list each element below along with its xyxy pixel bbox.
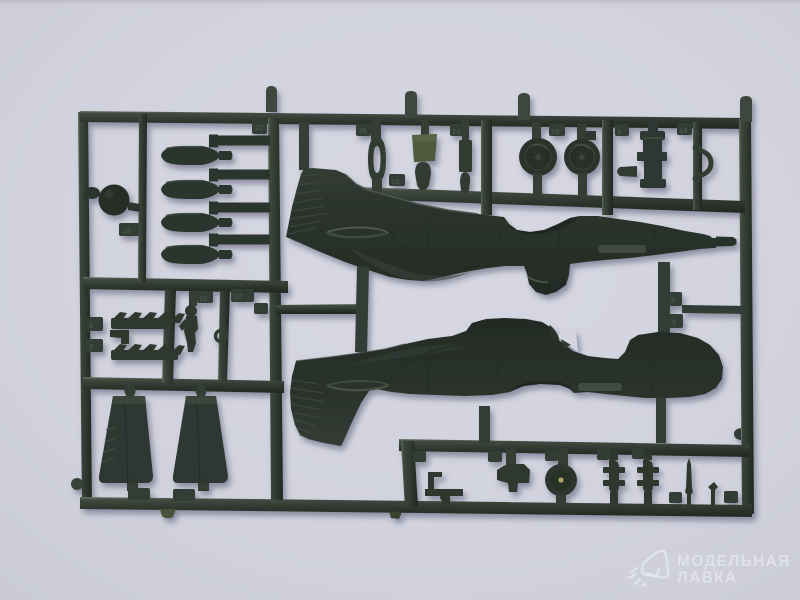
- svg-text:17: 17: [234, 292, 242, 301]
- svg-text:2: 2: [617, 127, 621, 136]
- svg-text:18: 18: [391, 177, 399, 186]
- svg-text:8: 8: [671, 296, 675, 305]
- svg-text:22: 22: [255, 123, 263, 132]
- svg-text:8: 8: [89, 321, 93, 330]
- svg-text:14: 14: [679, 126, 688, 135]
- svg-text:ЛАВКА: ЛАВКА: [677, 570, 737, 587]
- svg-text:2: 2: [89, 342, 93, 351]
- svg-text:15: 15: [358, 126, 366, 135]
- svg-text:23: 23: [452, 127, 460, 136]
- svg-text:16: 16: [123, 226, 131, 235]
- svg-text:МОДЕЛЬНАЯ: МОДЕЛЬНАЯ: [677, 553, 790, 570]
- svg-text:22: 22: [199, 294, 207, 303]
- svg-text:19: 19: [551, 127, 559, 136]
- svg-text:5: 5: [672, 318, 676, 327]
